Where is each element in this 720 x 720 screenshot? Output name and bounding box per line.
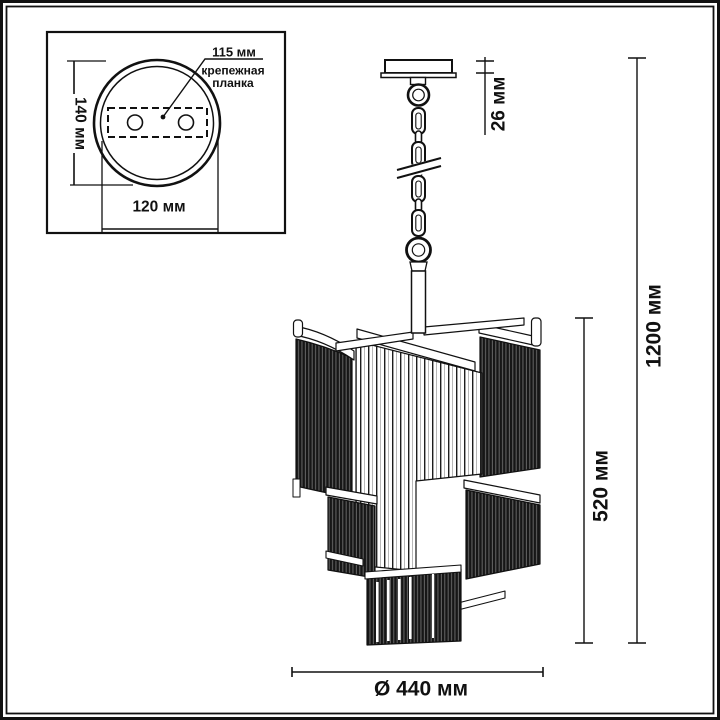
tier3-panel [367,569,461,645]
tier1-right-band-hook [532,318,542,346]
chain [394,108,443,236]
inset-plate-name-line2: планка [212,76,254,90]
hanging-ring-top [408,85,429,106]
chandelier-technical-drawing: 115 мм крепежная планка 140 мм 120 мм [0,0,720,720]
dim-shade-height-label: 520 мм [590,450,613,522]
dim-canopy-height-label: 26 мм [489,77,510,132]
rod-ferrule [410,262,427,271]
hanger-rod [412,271,426,333]
dim-total-height: 1200 мм [628,58,666,643]
tier2-right-panel [466,490,540,579]
hanging-ring-bottom [407,238,431,262]
inset-dim-140-label: 140 мм [72,97,89,150]
drawing-canvas: 115 мм крепежная планка 140 мм 120 мм [0,0,720,720]
dim-diameter-label: Ø 440 мм [374,678,468,701]
inset-dim-115-label: 115 мм [212,45,256,60]
tier1-left-panel [296,339,352,498]
tier1-left-band-hook [294,320,303,337]
mounting-plate-inset: 115 мм крепежная планка 140 мм 120 мм [47,32,285,234]
ceiling-canopy [381,60,456,85]
chandelier-body [293,318,541,645]
dim-shade-height: 520 мм [575,318,613,643]
inset-dim-120-label: 120 мм [132,199,185,216]
dim-diameter: Ø 440 мм [292,667,543,701]
tier1-left-post [293,479,300,497]
dim-canopy-height: 26 мм [476,57,510,135]
frame-arm-right [454,591,505,611]
tier1-right-panel [480,337,540,477]
tier2-left-panel [328,497,375,578]
dim-total-height-label: 1200 мм [643,284,666,368]
